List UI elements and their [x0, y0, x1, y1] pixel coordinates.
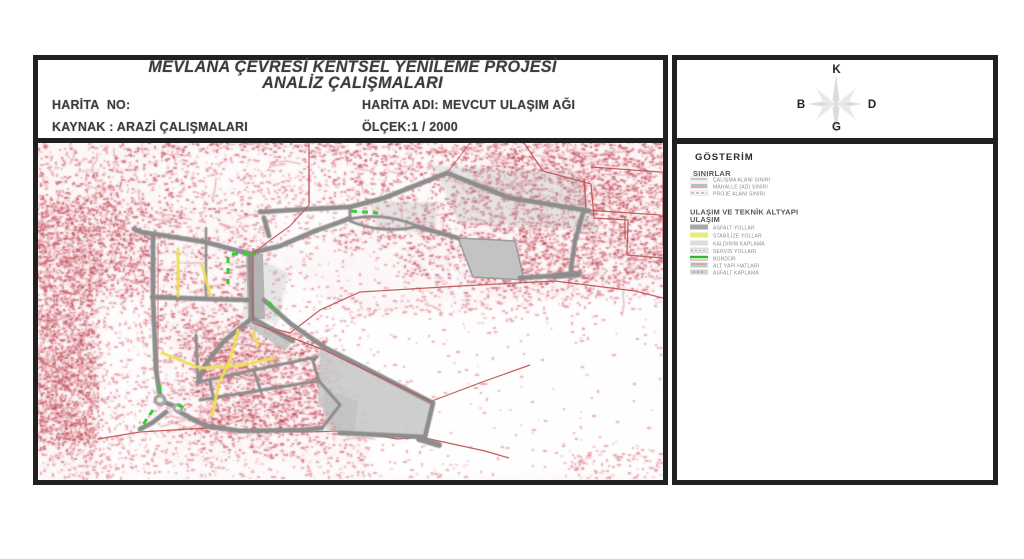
svg-text:PROJE ALANI SINIRI: PROJE ALANI SINIRI [713, 192, 765, 198]
svg-text:B: B [797, 99, 805, 111]
svg-text:K: K [832, 64, 841, 76]
svg-text:ÇALIŞMA ALANI SINIRI: ÇALIŞMA ALANI SINIRI [713, 178, 770, 184]
svg-text:ALT YAPI HATLARI: ALT YAPI HATLARI [713, 264, 759, 270]
svg-text:ASFALT YOLLAR: ASFALT YOLLAR [713, 226, 755, 232]
svg-text:MAHALLE (AD) SINIRI: MAHALLE (AD) SINIRI [713, 185, 768, 191]
svg-text:KALDIRIM KAPLAMA: KALDIRIM KAPLAMA [713, 242, 765, 248]
svg-text:BORDÜR: BORDÜR [713, 256, 736, 263]
svg-text:SERVİS YOLLARI: SERVİS YOLLARI [713, 248, 756, 255]
svg-text:ASFALT KAPLAMA: ASFALT KAPLAMA [713, 271, 759, 277]
svg-text:G: G [832, 122, 841, 134]
svg-text:ULAŞIM: ULAŞIM [690, 215, 720, 224]
svg-text:STABİLİZE YOLLAR: STABİLİZE YOLLAR [713, 233, 762, 240]
svg-text:D: D [868, 99, 876, 111]
